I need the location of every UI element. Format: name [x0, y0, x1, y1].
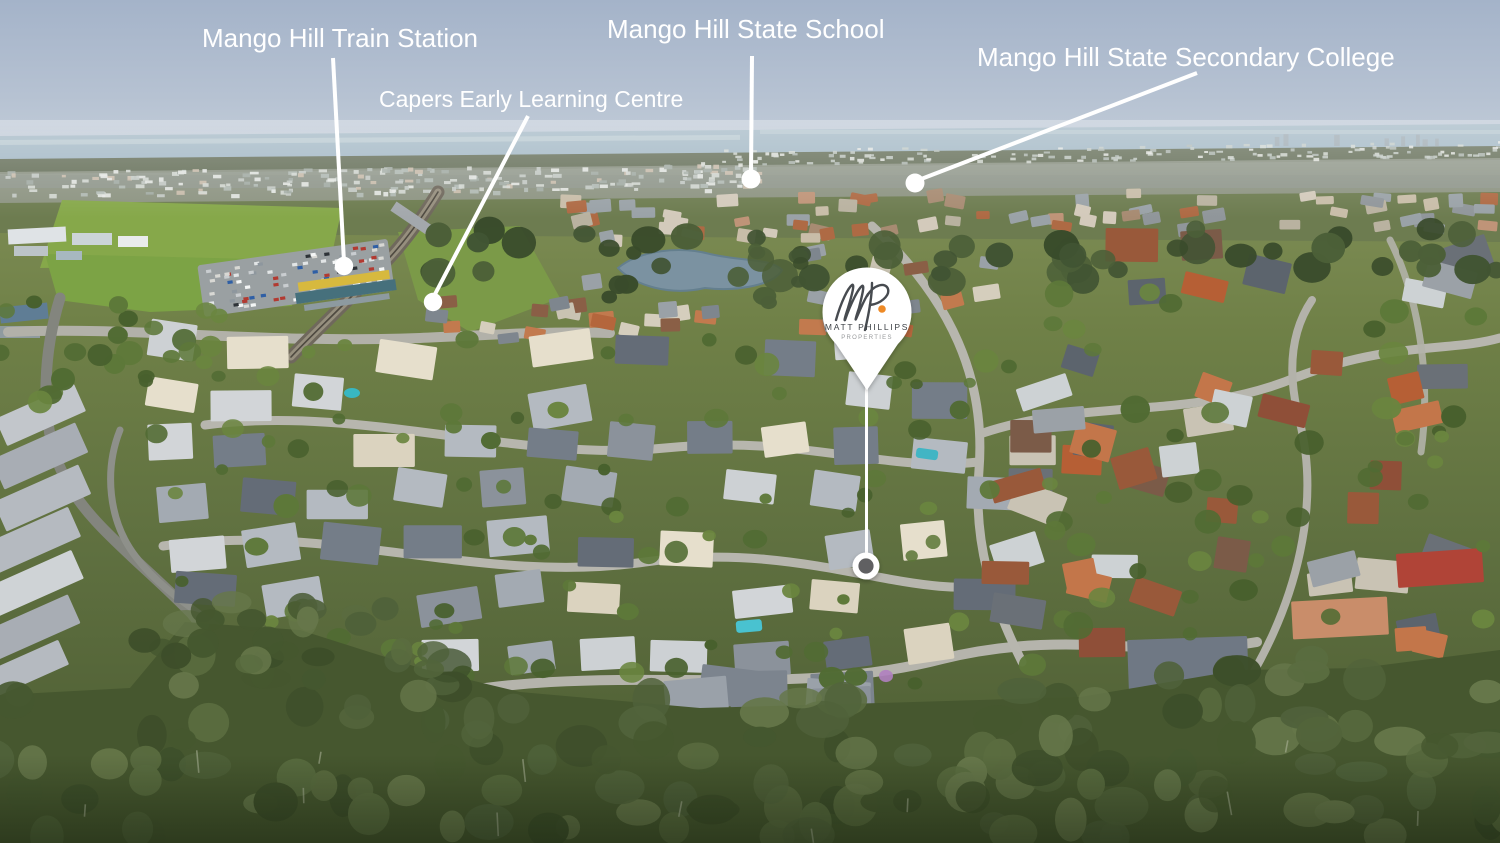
- brand-accent-dot: [878, 305, 886, 313]
- label-state-school: Mango Hill State School: [607, 14, 884, 45]
- pointer-early-learning-centre: [424, 116, 528, 311]
- pointer-secondary-college: [906, 73, 1198, 193]
- pointer-state-school: [742, 56, 761, 189]
- pointer-train-station: [333, 58, 353, 275]
- annotation-overlay: [0, 0, 1500, 843]
- property-marker-icon: [853, 553, 880, 580]
- label-secondary-college: Mango Hill State Secondary College: [977, 42, 1395, 73]
- label-train-station: Mango Hill Train Station: [202, 23, 478, 54]
- aerial-photo: Mango Hill Train Station Capers Early Le…: [0, 0, 1500, 843]
- brand-subtitle: PROPERTIES: [841, 335, 893, 341]
- brand-name: MATT PHILLIPS: [825, 322, 909, 332]
- label-early-learning-centre: Capers Early Learning Centre: [379, 86, 683, 113]
